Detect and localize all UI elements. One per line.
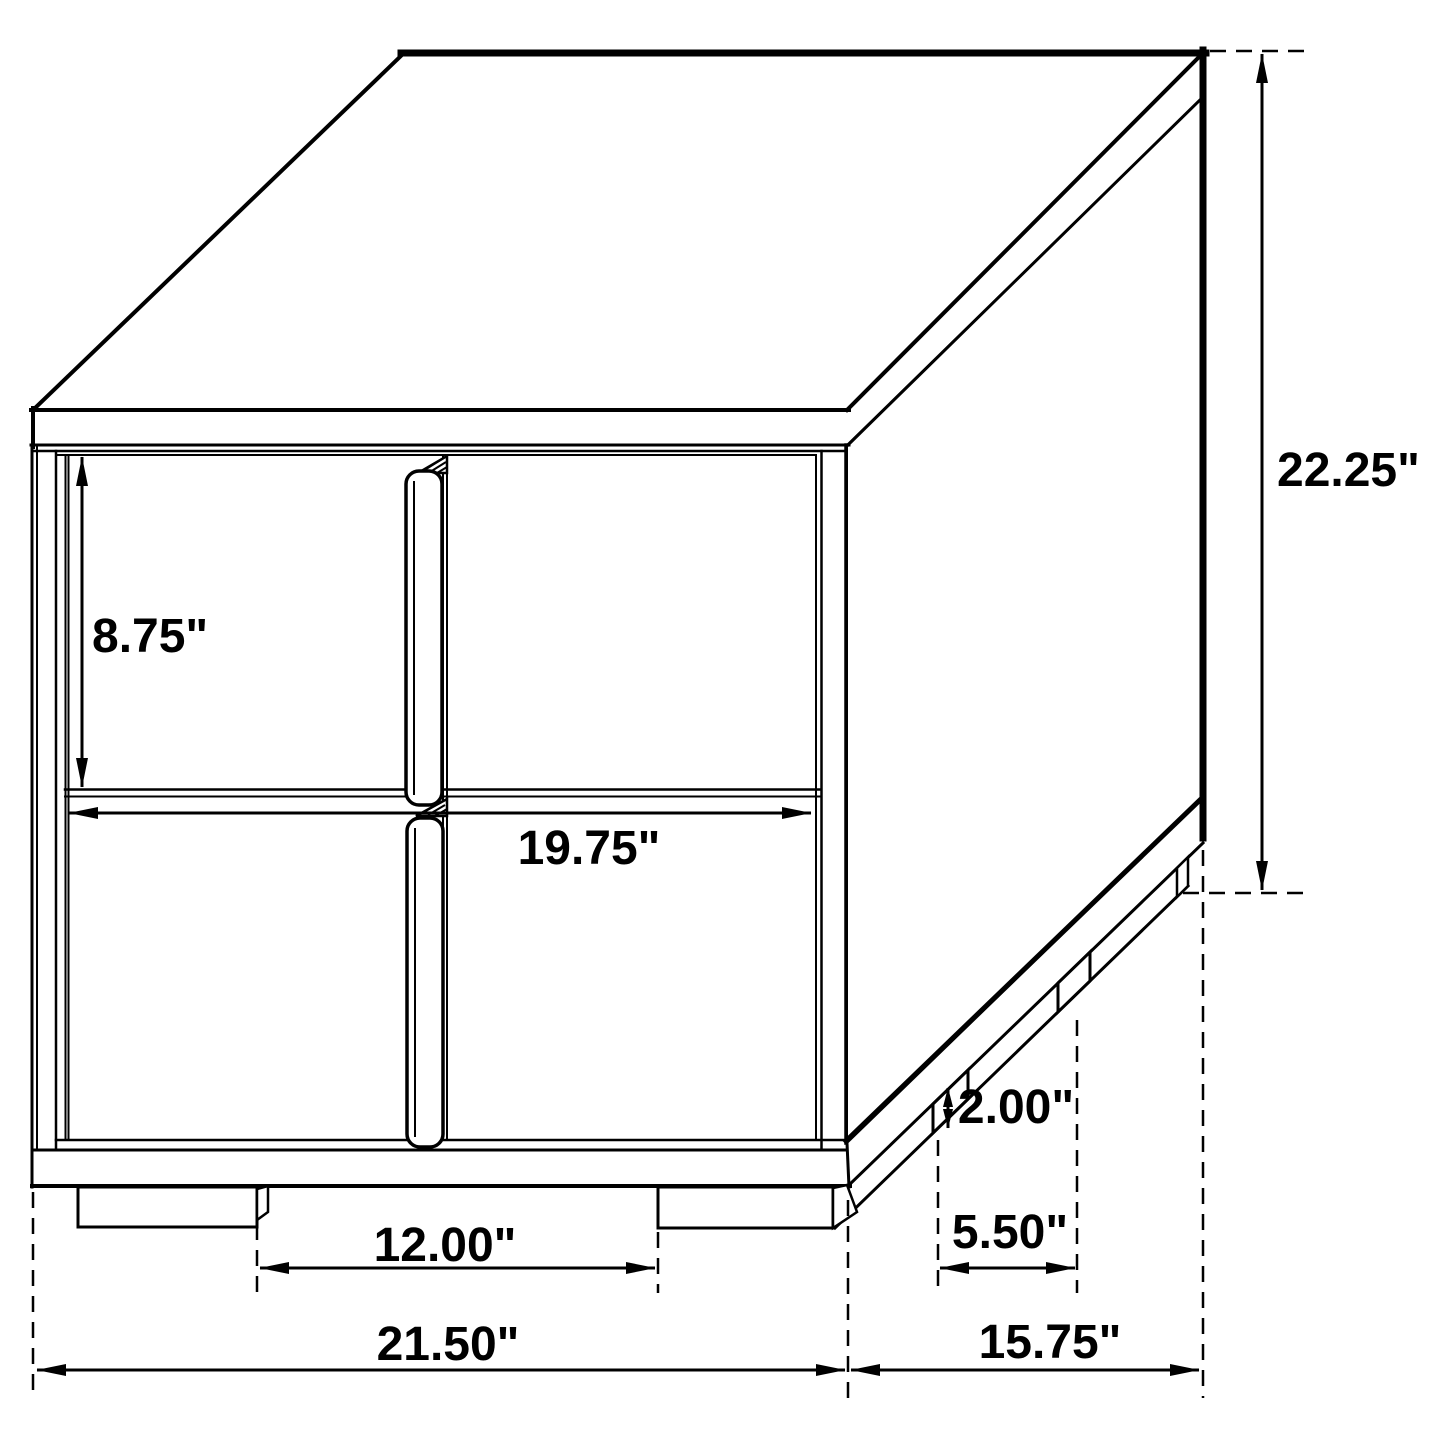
drawer-handles	[406, 456, 447, 1147]
dimension-labels: 8.75" 19.75" 22.25" 2.00" 5.50" 12.00" 2…	[92, 444, 1420, 1371]
front-right-leg-side	[833, 1185, 857, 1228]
lower-drawer-handle	[407, 818, 443, 1147]
label-overall-height: 22.25"	[1277, 444, 1420, 497]
upper-drawer-handle	[406, 471, 442, 805]
label-overall-width: 21.50"	[377, 1318, 520, 1371]
side-back-leg	[1058, 952, 1090, 1012]
front-right-leg	[658, 1187, 833, 1228]
dimension-drawing-page: 8.75" 19.75" 22.25" 2.00" 5.50" 12.00" 2…	[0, 0, 1445, 1445]
label-side-leg-spacing: 5.50"	[952, 1206, 1068, 1259]
back-corner-leg	[1177, 857, 1188, 897]
front-left-leg-side	[257, 1186, 268, 1220]
label-drawer-width: 19.75"	[518, 822, 661, 875]
front-left-leg	[78, 1187, 257, 1227]
label-front-leg-spacing: 12.00"	[374, 1219, 517, 1272]
label-leg-height: 2.00"	[958, 1081, 1074, 1134]
label-drawer-height: 8.75"	[92, 610, 208, 663]
label-overall-depth: 15.75"	[979, 1316, 1122, 1369]
nightstand-dimension-drawing: 8.75" 19.75" 22.25" 2.00" 5.50" 12.00" 2…	[0, 0, 1445, 1445]
